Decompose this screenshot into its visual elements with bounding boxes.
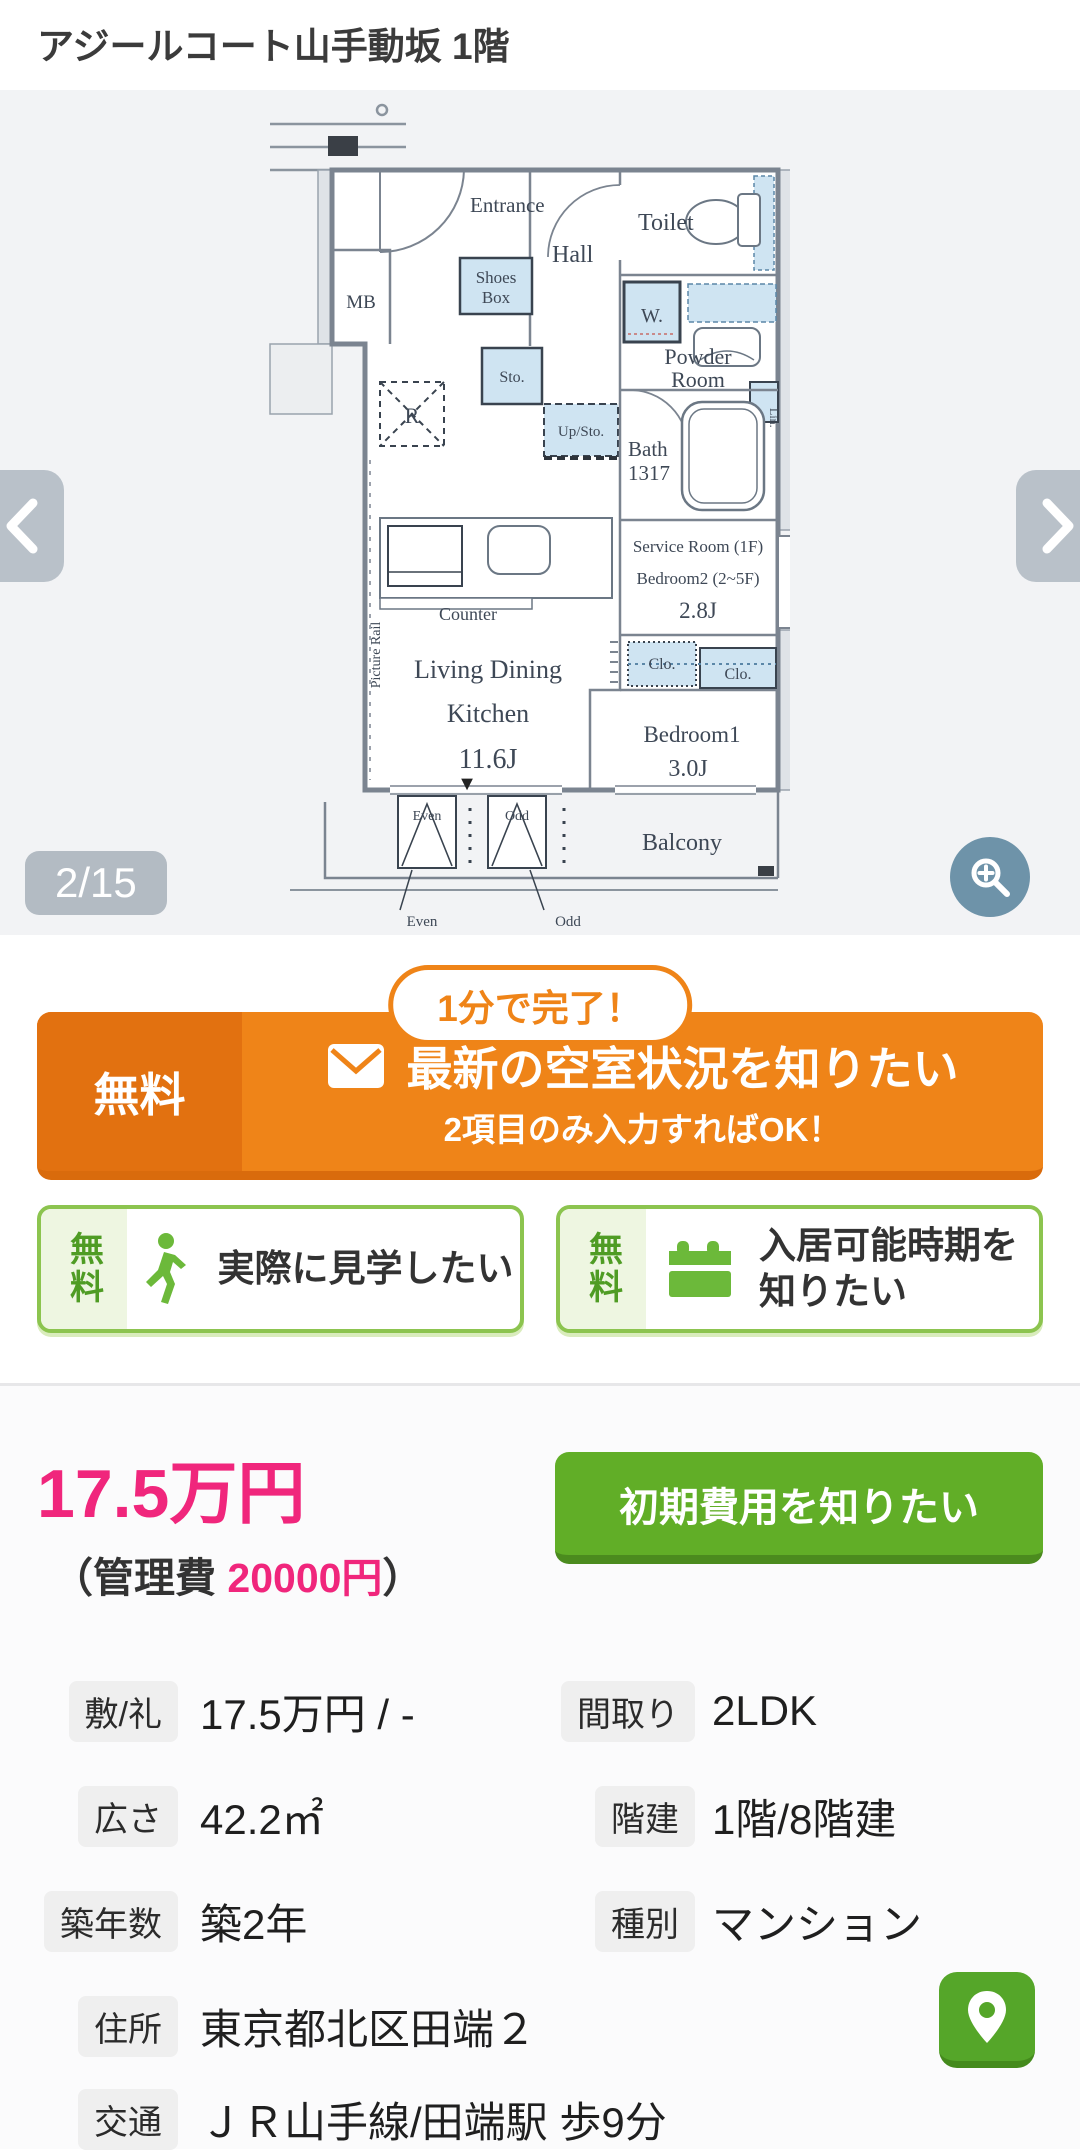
secondary-cta-row: 無料 実際に見学したい 無料 入居可能時期を 知りたい	[37, 1205, 1043, 1333]
detail-value-floor: 1階/8階建	[712, 1786, 896, 1847]
detail-label-address: 住所	[78, 1996, 178, 2057]
chevron-left-icon	[3, 497, 41, 555]
one-minute-badge: 1分で完了！	[388, 965, 692, 1045]
room-label-toilet: Toilet	[638, 210, 694, 236]
room-label-closet-2: Clo.	[724, 666, 751, 683]
detail-value-deposit: 17.5万円 / -	[200, 1681, 415, 1742]
room-label-shoesbox-2: Box	[482, 288, 511, 307]
magnifier-plus-icon	[967, 854, 1013, 900]
room-label-hall: Hall	[552, 242, 594, 268]
room-label-bedroom1: Bedroom1	[643, 722, 740, 747]
detail-label-age: 築年数	[44, 1891, 178, 1952]
map-pin-icon	[965, 1989, 1009, 2045]
table-row: 交通 ＪＲ山手線/田端駅 歩9分	[0, 2090, 1080, 2148]
page-title: アジールコート山手動坂 1階	[37, 16, 510, 70]
detail-label-area: 広さ	[78, 1786, 178, 1847]
initial-cost-button[interactable]: 初期費用を知りたい	[555, 1452, 1043, 1564]
movein-date-label: 入居可能時期を 知りたい	[759, 1223, 1018, 1316]
vacancy-cta-subtitle: 2項目のみ入力すればOK！	[444, 1103, 842, 1151]
carousel-prev-button[interactable]	[0, 470, 64, 582]
photo-counter: 2/15	[25, 851, 167, 915]
calendar-icon	[667, 1239, 733, 1299]
detail-value-layout: 2LDK	[712, 1687, 817, 1735]
room-label-washer: W.	[641, 305, 663, 327]
room-label-odd-box: Odd	[505, 809, 529, 824]
room-label-ldk-size: 11.6J	[459, 744, 518, 775]
detail-value-transport: ＪＲ山手線/田端駅 歩9分	[200, 2089, 667, 2150]
chevron-right-icon	[1039, 497, 1077, 555]
room-label-closet-1: Clo.	[648, 656, 675, 673]
detail-label-type: 種別	[595, 1891, 695, 1952]
photo-carousel: Entrance Hall Toilet Shoes Box MB W. Sto…	[0, 90, 1080, 935]
room-label-even-note: Even	[407, 914, 438, 930]
room-label-storage: Sto.	[499, 369, 524, 386]
detail-value-type: マンション	[712, 1891, 922, 1952]
room-label-bath-2: 1317	[628, 461, 670, 485]
room-label-bedroom2: Bedroom2 (2~5F)	[637, 569, 760, 588]
room-label-even-box: Even	[413, 809, 442, 824]
visit-request-button[interactable]: 無料 実際に見学したい	[37, 1205, 524, 1333]
door-marker: ▼	[457, 773, 477, 795]
carousel-next-button[interactable]	[1016, 470, 1080, 582]
room-label-balcony: Balcony	[642, 830, 722, 856]
wall-hatch	[328, 136, 358, 156]
table-row: 広さ 42.2㎡ 階建 1階/8階建	[0, 1787, 1080, 1845]
room-label-service-room: Service Room (1F)	[633, 537, 763, 556]
free-tag: 無料	[37, 1012, 242, 1171]
movein-date-button[interactable]: 無料 入居可能時期を 知りたい	[556, 1205, 1043, 1333]
room-label-mb: MB	[346, 292, 376, 313]
visit-request-label: 実際に見学したい	[218, 1246, 514, 1292]
map-button[interactable]	[939, 1972, 1035, 2068]
walking-person-icon	[134, 1232, 192, 1306]
detail-label-deposit: 敷/礼	[69, 1681, 178, 1742]
management-fee: （管理費 20000円）	[52, 1544, 423, 1604]
floorplan-image: Entrance Hall Toilet Shoes Box MB W. Sto…	[230, 90, 790, 935]
room-label-odd-note: Odd	[555, 914, 581, 930]
detail-value-address: 東京都北区田端２	[200, 1996, 536, 2057]
rent-price: 17.5万円	[37, 1438, 305, 1537]
detail-value-area: 42.2㎡	[200, 1786, 324, 1847]
zoom-image-button[interactable]	[950, 837, 1030, 917]
room-label-powder-1: Powder	[664, 344, 732, 369]
detail-value-age: 築2年	[200, 1891, 307, 1952]
room-label-upstorage: Up/Sto.	[558, 424, 604, 440]
table-row: 住所 東京都北区田端２	[0, 1997, 1080, 2055]
detail-label-floor: 階建	[595, 1786, 695, 1847]
room-label-picture-rail: Picture Rail	[369, 622, 384, 689]
vacancy-cta-section: 1分で完了！ 無料 最新の空室状況を知りたい 2項目のみ入力すればOK！	[37, 1012, 1043, 1180]
property-summary-section: 17.5万円 （管理費 20000円） 初期費用を知りたい 敷/礼 17.5万円…	[0, 1386, 1080, 2149]
detail-label-layout: 間取り	[561, 1681, 695, 1742]
table-row: 築年数 築2年 種別 マンション	[0, 1892, 1080, 1950]
room-label-ldk-1: Living Dining	[414, 655, 562, 684]
free-tag: 無料	[560, 1209, 646, 1329]
detail-label-transport: 交通	[78, 2089, 178, 2150]
free-tag: 無料	[41, 1209, 127, 1329]
room-label-ldk-2: Kitchen	[447, 699, 529, 728]
room-label-bedroom1-size: 3.0J	[668, 756, 707, 782]
room-label-entrance: Entrance	[470, 193, 545, 217]
envelope-icon	[327, 1043, 385, 1089]
room-label-bedroom2-size: 2.8J	[679, 598, 717, 623]
room-label-counter: Counter	[439, 604, 497, 624]
room-label-refrigerator: R	[405, 403, 420, 428]
room-label-linen: Lin.	[767, 408, 781, 428]
room-label-bath-1: Bath	[628, 437, 668, 461]
room-label-shoesbox-1: Shoes	[476, 268, 517, 287]
room-label-powder-2: Room	[671, 367, 725, 392]
table-row: 敷/礼 17.5万円 / - 間取り 2LDK	[0, 1682, 1080, 1740]
